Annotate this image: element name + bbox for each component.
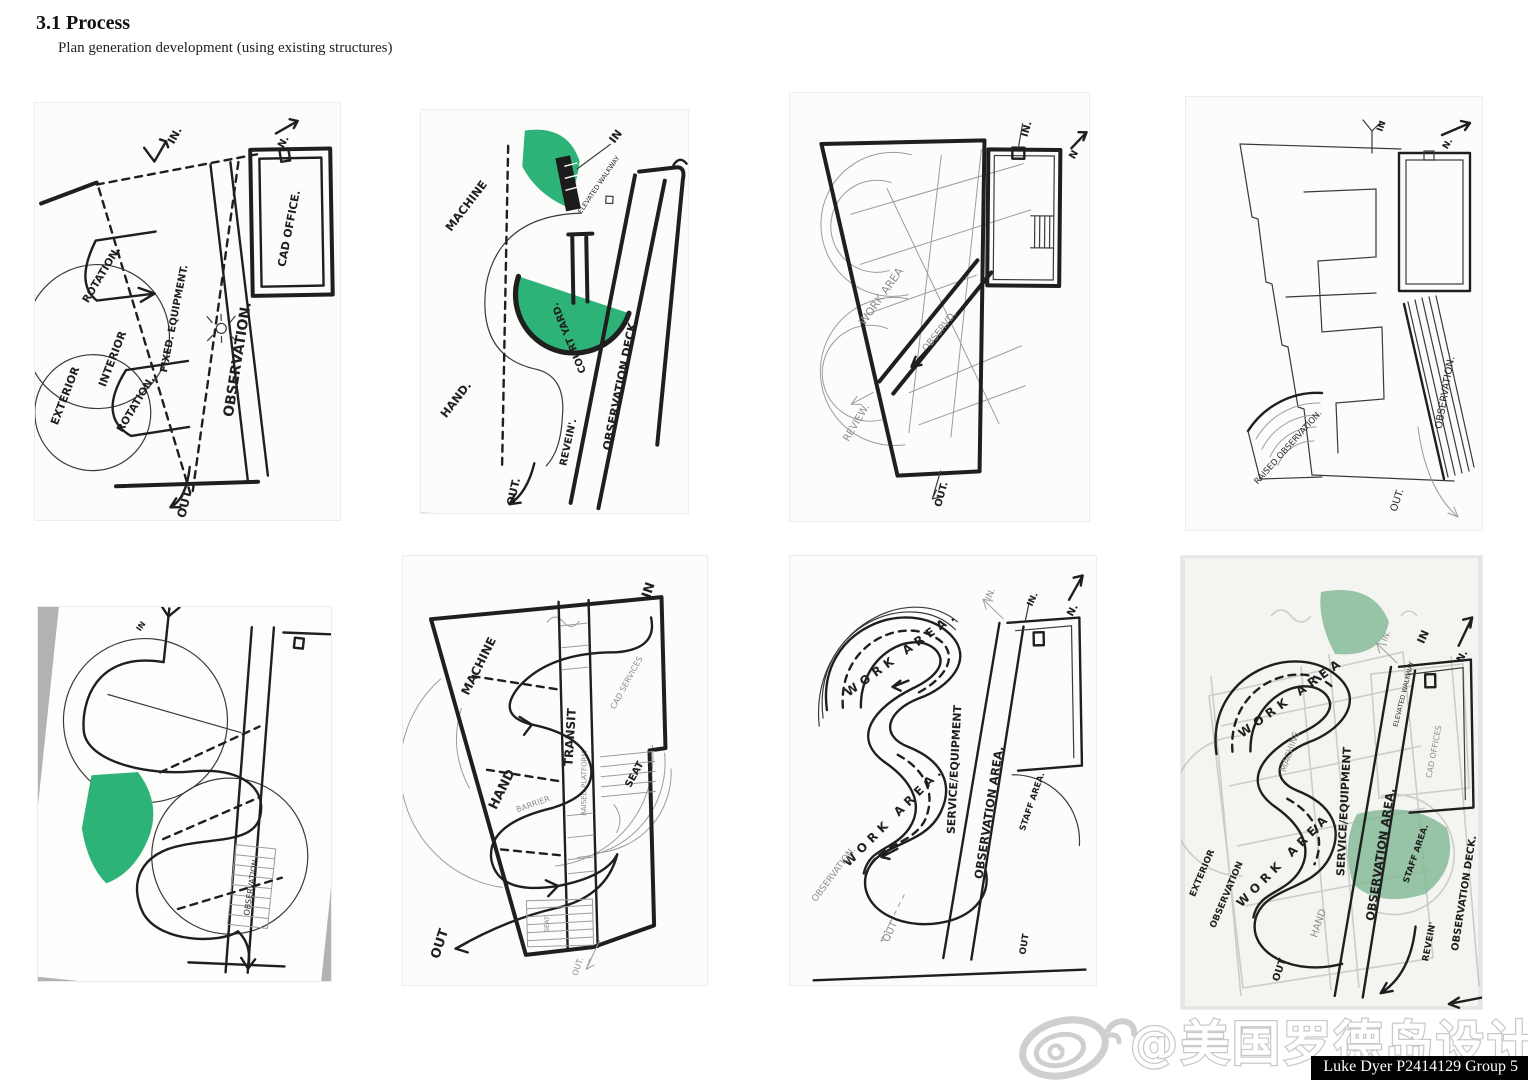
out-label: OUT. bbox=[933, 481, 950, 509]
sketch-1-plan-rotation-loops: IN. N. CAD OFFICE. OBSERVATION. ROTATION… bbox=[35, 103, 340, 520]
sketch-6-drawing: TRANSIT RAISED PLATFORM CAD SERVICES SEA… bbox=[403, 580, 676, 982]
cad-services-label: CAD SERVICES bbox=[609, 655, 645, 711]
site-top-edge bbox=[1240, 144, 1401, 149]
observ-label: OBSERVD. bbox=[920, 309, 959, 354]
out-ink-label: OUT bbox=[1018, 932, 1031, 955]
barrier-label: BARRIER bbox=[515, 794, 551, 814]
raised-platform-label: RAISED PLATFORM bbox=[580, 751, 589, 816]
sketch-4-card: OBSERVATION. RAISED OBSERVATION. IN N. O… bbox=[1186, 97, 1482, 530]
door-marker bbox=[1034, 632, 1044, 645]
paper-edge bbox=[814, 970, 1086, 981]
sketch-7-card: WORK AREA. WORK AREA. SERVICE/EQUIPMENT … bbox=[790, 556, 1096, 985]
in-arrow bbox=[144, 139, 168, 161]
snake-outer-curve bbox=[825, 616, 988, 926]
north-arrow bbox=[1069, 576, 1083, 600]
stripe-band-edge bbox=[1404, 304, 1444, 479]
in-ink-label: IN. bbox=[1026, 591, 1041, 608]
weibo-logo-icon bbox=[1017, 1012, 1134, 1080]
sketch-6-card: TRANSIT RAISED PLATFORM CAD SERVICES SEA… bbox=[403, 556, 707, 985]
observation-side-label: OBSERVATION. bbox=[810, 845, 858, 904]
sketch-4-plan-raised-observation: OBSERVATION. RAISED OBSERVATION. IN N. O… bbox=[1186, 97, 1482, 530]
north-label: N. bbox=[1441, 137, 1455, 151]
service-equipment-label: SERVICE/EQUIPMENT bbox=[945, 704, 965, 834]
sketch-5-drawing: IN OBSERVATION. bbox=[38, 607, 331, 981]
north-arrow bbox=[276, 119, 298, 133]
sketch-7-plan-work-area-snake: WORK AREA. WORK AREA. SERVICE/EQUIPMENT … bbox=[790, 556, 1096, 985]
snake-dashed-centerline bbox=[841, 630, 952, 876]
sketch-7-drawing: WORK AREA. WORK AREA. SERVICE/EQUIPMENT … bbox=[805, 576, 1090, 981]
sketch-5-plan-s-curve: IN OBSERVATION. bbox=[38, 607, 331, 981]
in-pencil-label: IN. bbox=[984, 587, 998, 602]
rotation-label-a: ROTATION. bbox=[80, 245, 123, 306]
sketch-2-plan-courtyard: IN ELEVATED WALKWAY MACHINE HAND. COURT … bbox=[421, 110, 688, 513]
transit-label: TRANSIT bbox=[561, 707, 579, 767]
in-label: IN. bbox=[165, 125, 185, 147]
in-pencil-arrow bbox=[983, 599, 1003, 619]
annex-outline bbox=[1399, 153, 1470, 291]
portfolio-page: 3.1 Process Plan generation development … bbox=[0, 0, 1528, 1080]
credit-bar: Luke Dyer P2414129 Group 5 bbox=[1311, 1056, 1528, 1080]
fixed-equipment-label: FIXED. EQUIPMENT. bbox=[159, 264, 191, 374]
in-label: IN bbox=[1376, 119, 1389, 133]
out-small-label: OUT. bbox=[571, 956, 585, 977]
out-label: OUT. bbox=[1389, 487, 1407, 513]
sketch-6-plan-transit: TRANSIT RAISED PLATFORM CAD SERVICES SEA… bbox=[403, 556, 707, 985]
hand-label: HAND bbox=[486, 767, 519, 812]
work-area-label-b: WORK AREA. bbox=[841, 763, 948, 870]
in-label: IN. bbox=[1020, 120, 1035, 138]
north-label: N bbox=[1067, 149, 1081, 162]
sketch-3-card: IN. N OBSERVD. WORK AREA REVIEW. OUT. bbox=[790, 93, 1089, 521]
seat-small-label: SEAT bbox=[543, 916, 552, 933]
wall-line bbox=[41, 183, 97, 204]
annex-inner bbox=[1406, 160, 1463, 284]
sketch-4-drawing: OBSERVATION. RAISED OBSERVATION. IN N. O… bbox=[1240, 119, 1474, 517]
paper bbox=[38, 607, 331, 981]
sketch-3-drawing: IN. N OBSERVD. WORK AREA REVIEW. OUT. bbox=[818, 118, 1086, 509]
staff-arc bbox=[1012, 774, 1080, 847]
page-subtitle: Plan generation development (using exist… bbox=[58, 40, 393, 57]
site-bottom-edge bbox=[1312, 475, 1454, 481]
sketch-2-card: IN ELEVATED WALKWAY MACHINE HAND. COURT … bbox=[421, 110, 688, 513]
exterior-label: EXTERIOR bbox=[48, 364, 82, 426]
pencil-arcs bbox=[403, 614, 674, 890]
north-arrow bbox=[1071, 132, 1086, 148]
out-label: OUT bbox=[174, 488, 195, 519]
north-arrow bbox=[1442, 121, 1470, 135]
sketch-8-plan-overlay: WORK AREA WORK AREA SERVICE/EQUIPMENT OB… bbox=[1181, 556, 1482, 1009]
band-arrow bbox=[911, 347, 929, 367]
work-area-arrow-a bbox=[892, 681, 908, 691]
out-arrow bbox=[1418, 427, 1458, 517]
review-label: REVIEW. bbox=[842, 402, 872, 443]
interior-walls bbox=[1286, 189, 1384, 453]
page-title: 3.1 Process bbox=[36, 12, 130, 35]
sketch-2-drawing: IN ELEVATED WALKWAY MACHINE HAND. COURT … bbox=[421, 110, 688, 513]
north-label: N. bbox=[1065, 602, 1081, 618]
out-label: OUT bbox=[428, 927, 452, 961]
out-pencil-label: OUT bbox=[881, 919, 900, 944]
sketch-1-card: IN. N. CAD OFFICE. OBSERVATION. ROTATION… bbox=[35, 103, 340, 520]
sketch-5-card: IN OBSERVATION. bbox=[38, 607, 331, 981]
observation-label: OBSERVATION. bbox=[221, 301, 255, 418]
staff-area-label: STAFF AREA. bbox=[1018, 771, 1047, 832]
cad-office-label: CAD OFFICE. bbox=[275, 189, 303, 268]
stair-hatch bbox=[1031, 216, 1054, 248]
sketch-8-card: WORK AREA WORK AREA SERVICE/EQUIPMENT OB… bbox=[1181, 556, 1482, 1009]
sketch-3-plan-work-area: IN. N OBSERVD. WORK AREA REVIEW. OUT. bbox=[790, 93, 1089, 521]
machine-label: MACHINE bbox=[458, 635, 499, 697]
interior-label: INTERIOR bbox=[96, 329, 129, 389]
sketch-1-drawing: IN. N. CAD OFFICE. OBSERVATION. ROTATION… bbox=[35, 118, 337, 520]
dashed-divisions bbox=[473, 674, 566, 858]
